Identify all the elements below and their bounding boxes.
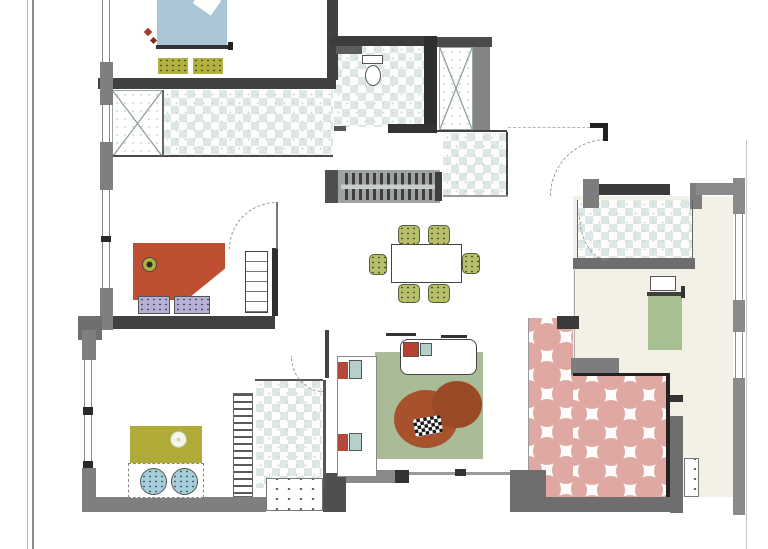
- wall-bathroom-top-bottom: [388, 124, 437, 133]
- pillow-lavender-b: [174, 296, 210, 314]
- pillow-round-a: [140, 468, 167, 495]
- wall-terrace-right-tick: [670, 395, 683, 402]
- speaker-bottom-teal: [349, 433, 362, 451]
- wall-closet-right: [473, 47, 490, 132]
- wall-dash-sofa-a: [386, 333, 416, 336]
- wall-living-bottom-tick: [395, 470, 409, 483]
- dining-table: [391, 244, 462, 283]
- line-bath-right-right: [692, 200, 693, 258]
- wall-bedroom2-bottom: [113, 316, 275, 329]
- wall-right-seg1: [733, 178, 745, 214]
- line-entry-dash: [508, 127, 590, 128]
- speaker-top-red: [338, 362, 348, 379]
- wall-left2-seg1: [82, 330, 96, 360]
- window-tick-left2a: [83, 407, 93, 415]
- window-left2-2: [84, 415, 92, 461]
- line-bath-mid-right: [506, 132, 508, 196]
- wall-right-seg3: [733, 378, 745, 515]
- chair-bottom-right: [428, 284, 450, 303]
- wall-bathroom-top-sill: [334, 126, 346, 131]
- window-tick-left: [101, 236, 111, 242]
- wall-dash-sofa-b: [441, 335, 467, 338]
- wall-left-seg2: [100, 142, 113, 190]
- window-left-2: [102, 105, 110, 142]
- kitchen-counter-end: [435, 172, 442, 201]
- wall-left-seg1: [100, 62, 113, 105]
- terrace-step: [684, 458, 699, 497]
- wall-bath-closet-divider: [424, 36, 437, 130]
- bed-green-pillow: [650, 276, 676, 291]
- sheet-border-inner-left: [32, 0, 34, 549]
- toilet-tank: [362, 55, 383, 64]
- sofa-pillow-red: [403, 342, 419, 357]
- wall-bedroom2-right: [272, 248, 278, 316]
- line-terrace-main-top: [573, 373, 670, 376]
- line-living-left: [325, 330, 329, 378]
- wall-terrace-bottom: [528, 497, 678, 512]
- floor-plan: [0, 0, 768, 549]
- shower-left: [112, 90, 163, 157]
- bed-single-green: [648, 296, 682, 350]
- bath-top-fixture: [336, 46, 362, 54]
- bathroom-bottomleft-tiles: [256, 380, 322, 488]
- sheet-border-right: [746, 140, 747, 549]
- decor-red-b: [150, 37, 157, 44]
- window-right-2: [735, 332, 743, 378]
- window-left2-1: [84, 360, 92, 407]
- tick-terrace-edge: [455, 469, 466, 476]
- closet-top: [439, 47, 473, 130]
- cabinet-shelves: [245, 251, 268, 313]
- entry-step: [266, 478, 323, 511]
- wall-right-seg2: [733, 300, 745, 332]
- sofa-pillow-teal: [420, 343, 432, 356]
- speaker-bottom-red: [338, 434, 348, 451]
- wall-bedroom3-top: [696, 183, 738, 195]
- chair-left: [369, 254, 387, 275]
- speaker-top-teal: [349, 360, 362, 379]
- bathroom-left-tiles: [163, 90, 333, 157]
- door-jamb-entrance-v: [603, 123, 608, 141]
- wall-bathroom-top: [330, 36, 430, 46]
- wall-entry-block: [323, 473, 346, 512]
- pillow-round-b: [171, 468, 198, 495]
- bed-blue-tick: [228, 42, 233, 50]
- chair-top-left: [398, 225, 420, 245]
- wall-bottom-left: [88, 497, 266, 512]
- wall-terrace-corner: [557, 316, 579, 329]
- line-bath4-right: [323, 380, 326, 490]
- chair-top-right: [428, 225, 450, 245]
- chair-bottom-left: [398, 284, 420, 303]
- line-bath-mid-top: [437, 130, 507, 132]
- bed-blue-board: [156, 45, 228, 49]
- door-arc-entrance: [550, 139, 607, 196]
- chair-right: [462, 253, 480, 274]
- window-tick-left2b: [83, 461, 93, 468]
- ladder-shelf: [233, 393, 253, 497]
- door-leaf-bedroom2: [276, 202, 278, 249]
- line-bath-mid-bottom: [443, 195, 508, 197]
- nightstand-left: [158, 58, 188, 74]
- bathroom-mid-tiles: [443, 133, 507, 196]
- line-bathroom-left-bottom: [112, 155, 333, 157]
- terrace-tiles-main: [573, 376, 668, 497]
- wall-bath-right-bottom: [573, 258, 695, 269]
- window-left-1: [102, 0, 110, 62]
- bed-olive-flower: [170, 431, 187, 448]
- line-bath-right-left: [577, 200, 578, 258]
- bed-green-tick: [681, 286, 685, 298]
- bed-red-flower: [142, 257, 157, 272]
- bed-single-olive: [130, 426, 202, 463]
- window-right-1: [735, 214, 743, 300]
- kitchen-counter: [338, 170, 440, 203]
- sheet-border-outer-left: [27, 0, 28, 549]
- line-shower-divider: [162, 90, 164, 156]
- decor-red-a: [144, 28, 152, 36]
- wall-bedroom1-bottom: [98, 78, 336, 89]
- wall-closet-top: [430, 37, 492, 47]
- nightstand-right: [193, 58, 223, 74]
- door-arc-bedroom2: [229, 202, 277, 249]
- toilet-bowl: [365, 65, 381, 86]
- pillow-lavender-a: [138, 296, 170, 314]
